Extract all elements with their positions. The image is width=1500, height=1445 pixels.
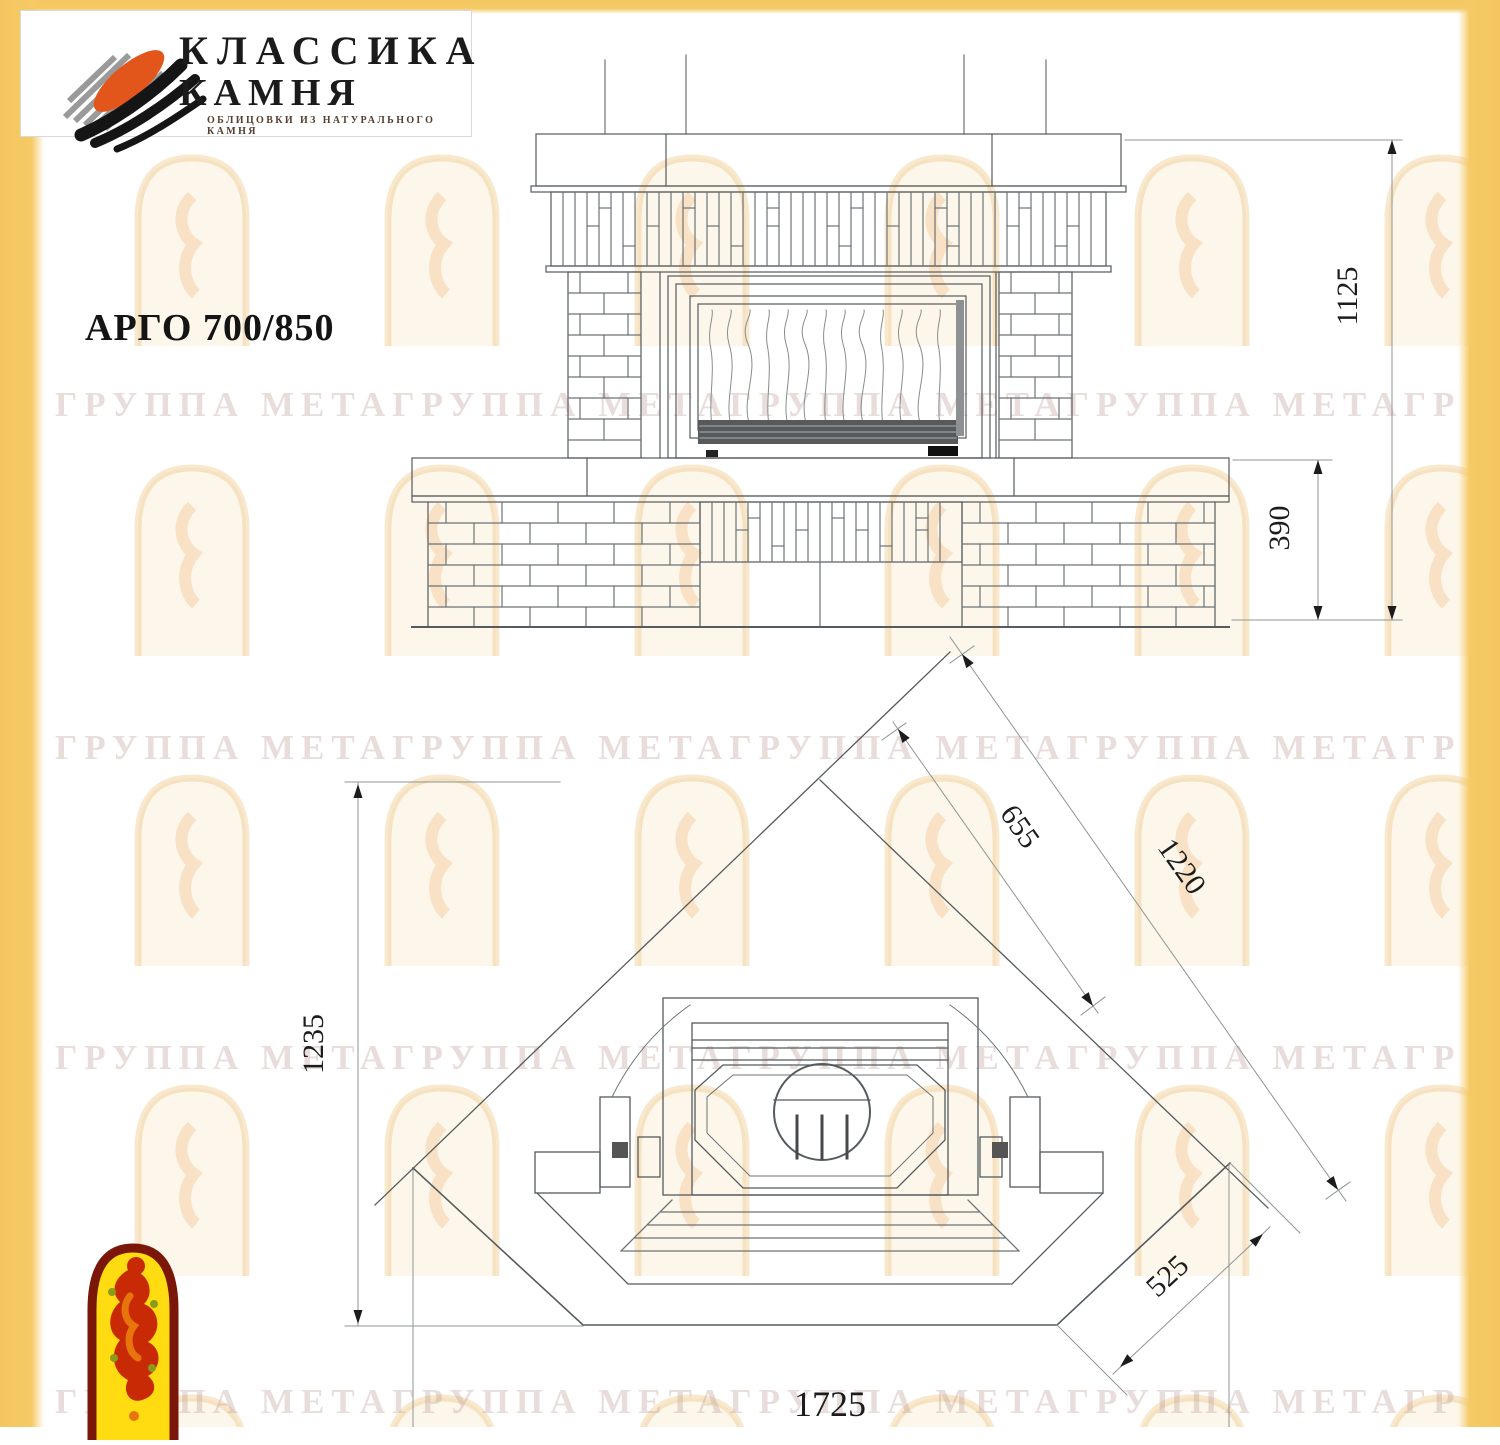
dim-text-1725: 1725 <box>794 1384 866 1424</box>
plan-view <box>345 652 1268 1326</box>
frame-border-left <box>0 0 44 1427</box>
dim-line-525 <box>1113 1227 1270 1374</box>
logo-title-line1: КЛАССИКА <box>179 27 483 74</box>
dim-text-390: 390 <box>1263 506 1296 551</box>
front-elevation-dimensions: 1125 390 <box>1125 140 1402 620</box>
company-logo-box: КЛАССИКА КАМНЯ ОБЛИЦОВКИ ИЗ НАТУРАЛЬНОГО… <box>20 10 472 137</box>
bench-plan <box>535 1152 1103 1284</box>
dim-line-655 <box>893 722 1098 1013</box>
frame-border-right <box>1458 0 1500 1427</box>
flame-decor <box>710 310 941 426</box>
bench-slab <box>412 458 1229 502</box>
plan-view-dimensions: 1235 655 1220 525 1725 <box>297 637 1350 1427</box>
dimension-arrows <box>1314 140 1397 620</box>
dimension-arrows <box>354 654 1339 1367</box>
front-elevation <box>412 55 1229 627</box>
firebox-door <box>660 272 996 458</box>
dim-text-1235: 1235 <box>297 1014 330 1074</box>
logo-subtitle: ОБЛИЦОВКИ ИЗ НАТУРАЛЬНОГО КАМНЯ <box>207 115 471 137</box>
drawing-sheet: { "branding": { "logo_title_line1": "КЛА… <box>0 0 1500 1427</box>
mantel-shelf <box>531 134 1126 192</box>
dim-text-1125: 1125 <box>1331 267 1364 326</box>
plinth <box>412 502 1229 627</box>
dim-text-525: 525 <box>1140 1249 1195 1304</box>
hearth-steps <box>621 1200 1019 1251</box>
meta-emblem <box>86 1240 180 1440</box>
mantel-tile-band <box>546 192 1111 272</box>
stove-body-plan <box>663 998 978 1195</box>
dim-text-655: 655 <box>993 799 1046 855</box>
model-title: АРГО 700/850 <box>85 306 335 350</box>
dim-text-1220: 1220 <box>1151 833 1212 901</box>
main-drawing: 1125 390 <box>0 0 1500 1427</box>
chimney-lines <box>605 55 1046 134</box>
logo-title-line2: КАМНЯ <box>179 71 362 115</box>
meta-emblem-icon <box>86 1240 180 1440</box>
